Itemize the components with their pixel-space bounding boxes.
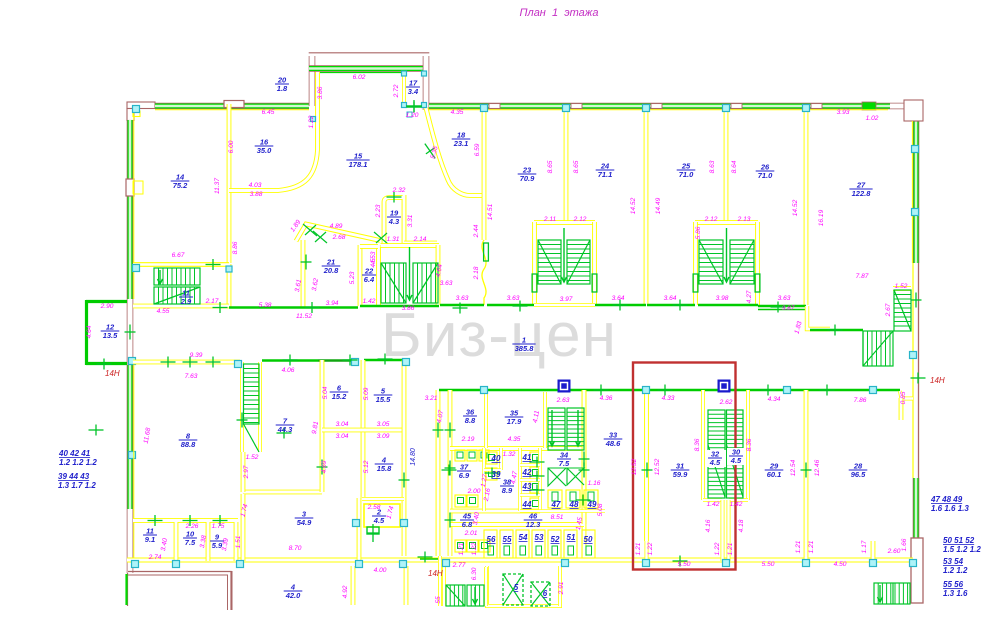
svg-text:5.38: 5.38 — [259, 302, 272, 309]
svg-text:1.22: 1.22 — [647, 542, 654, 555]
svg-text:3.64: 3.64 — [664, 295, 677, 302]
svg-text:6.67: 6.67 — [172, 252, 185, 259]
svg-text:8.36: 8.36 — [694, 438, 701, 451]
svg-text:71.0: 71.0 — [758, 171, 773, 180]
svg-text:3.4: 3.4 — [408, 87, 419, 96]
svg-text:122.8: 122.8 — [852, 189, 872, 198]
svg-text:3.31: 3.31 — [407, 214, 414, 227]
svg-text:6.45: 6.45 — [262, 109, 275, 116]
svg-text:2.12: 2.12 — [573, 216, 587, 223]
svg-text:6.00: 6.00 — [228, 140, 235, 153]
svg-text:2.9: 2.9 — [180, 297, 192, 306]
svg-text:15.5: 15.5 — [376, 395, 391, 404]
svg-text:4.64: 4.64 — [86, 325, 93, 338]
svg-text:1.42: 1.42 — [730, 501, 743, 508]
svg-text:1.75: 1.75 — [212, 523, 225, 530]
svg-text:1.8: 1.8 — [277, 84, 288, 93]
svg-text:40: 40 — [491, 454, 501, 463]
svg-text:1.22: 1.22 — [714, 542, 721, 555]
svg-text:3.63: 3.63 — [456, 295, 469, 302]
svg-text:8.63: 8.63 — [709, 160, 716, 173]
svg-text:2.11: 2.11 — [543, 216, 557, 223]
svg-text:59.9: 59.9 — [673, 470, 688, 479]
svg-text:1.21: 1.21 — [808, 540, 815, 553]
svg-text:6.02: 6.02 — [353, 74, 366, 81]
svg-text:14.51: 14.51 — [487, 203, 494, 220]
svg-text:385.8: 385.8 — [515, 344, 535, 353]
svg-text:41: 41 — [522, 453, 532, 462]
svg-text:4.92: 4.92 — [342, 585, 349, 598]
svg-text:12.3: 12.3 — [526, 520, 541, 529]
svg-text:1.3 1.7 1.2: 1.3 1.7 1.2 — [58, 481, 96, 490]
svg-text:1.21: 1.21 — [458, 542, 465, 555]
svg-text:8.64: 8.64 — [731, 160, 738, 173]
svg-text:15.8: 15.8 — [377, 464, 392, 473]
svg-text:3.64: 3.64 — [612, 295, 625, 302]
svg-text:23.1: 23.1 — [453, 139, 469, 148]
svg-text:1.52: 1.52 — [895, 283, 908, 290]
svg-text:1.21: 1.21 — [795, 540, 802, 553]
svg-text:4.5: 4.5 — [730, 456, 742, 465]
svg-text:1.3 1.6: 1.3 1.6 — [943, 589, 968, 598]
svg-text:5.12: 5.12 — [363, 460, 370, 473]
svg-text:4.3: 4.3 — [388, 217, 400, 226]
svg-text:2.19: 2.19 — [461, 436, 475, 443]
svg-text:1.17: 1.17 — [861, 540, 868, 553]
svg-text:8.36: 8.36 — [746, 438, 753, 451]
svg-text:8.65: 8.65 — [573, 160, 580, 173]
svg-text:14H: 14H — [428, 569, 443, 578]
svg-text:1.21: 1.21 — [635, 542, 642, 555]
svg-text:3.86: 3.86 — [317, 86, 324, 99]
svg-text:4.55: 4.55 — [157, 308, 170, 315]
svg-text:3.21: 3.21 — [425, 395, 438, 402]
svg-text:3.86: 3.86 — [402, 305, 415, 312]
svg-text:71.0: 71.0 — [679, 170, 694, 179]
svg-text:4.89: 4.89 — [330, 223, 343, 230]
svg-text:3.87: 3.87 — [782, 305, 795, 312]
svg-text:3.97: 3.97 — [560, 296, 573, 303]
svg-text:49: 49 — [587, 500, 597, 509]
svg-text:1.22: 1.22 — [471, 542, 478, 555]
svg-text:42: 42 — [522, 468, 532, 477]
svg-text:52: 52 — [551, 535, 560, 544]
svg-text:2.68: 2.68 — [332, 234, 346, 241]
svg-text:6.59: 6.59 — [474, 143, 481, 156]
svg-text:5.08: 5.08 — [597, 503, 604, 516]
svg-text:56: 56 — [487, 535, 496, 544]
svg-text:1.21: 1.21 — [727, 542, 734, 555]
svg-text:14.52: 14.52 — [792, 199, 799, 216]
svg-text:17.9: 17.9 — [507, 417, 522, 426]
svg-text:1.22: 1.22 — [308, 115, 315, 128]
svg-text:8.8: 8.8 — [465, 416, 476, 425]
svg-text:7.5: 7.5 — [185, 538, 196, 547]
svg-text:12.54: 12.54 — [790, 459, 797, 476]
svg-text:15.2: 15.2 — [332, 392, 347, 401]
svg-text:5.04: 5.04 — [322, 386, 329, 399]
svg-text:44.3: 44.3 — [277, 425, 293, 434]
svg-text:2.23: 2.23 — [375, 204, 382, 218]
svg-text:13.5: 13.5 — [103, 331, 118, 340]
svg-text:2.13: 2.13 — [737, 216, 751, 223]
svg-text:14.52: 14.52 — [630, 197, 637, 214]
svg-text:44: 44 — [522, 500, 532, 509]
svg-text:2.63: 2.63 — [556, 397, 570, 404]
svg-text:2.77: 2.77 — [452, 562, 466, 569]
svg-text:8.9: 8.9 — [502, 486, 513, 495]
svg-text:4.5: 4.5 — [370, 258, 377, 267]
svg-text:6.9: 6.9 — [459, 471, 470, 480]
svg-text:2.01: 2.01 — [464, 530, 478, 537]
svg-text:50: 50 — [584, 535, 593, 544]
svg-text:2.97: 2.97 — [243, 465, 250, 479]
svg-text:2.67: 2.67 — [885, 303, 892, 317]
svg-text:54.9: 54.9 — [297, 518, 312, 527]
svg-text:54: 54 — [519, 533, 528, 542]
svg-text:8.70: 8.70 — [289, 545, 302, 552]
svg-text:39: 39 — [492, 470, 501, 479]
svg-text:1.31: 1.31 — [387, 236, 400, 243]
svg-text:55 56: 55 56 — [943, 580, 964, 589]
svg-text:4.33: 4.33 — [662, 395, 675, 402]
svg-text:2.18: 2.18 — [473, 266, 480, 280]
svg-text:4.06: 4.06 — [282, 367, 295, 374]
svg-text:2.12: 2.12 — [704, 216, 718, 223]
svg-text:3.93: 3.93 — [837, 109, 850, 116]
svg-text:53: 53 — [535, 533, 544, 542]
svg-text:3.63: 3.63 — [507, 295, 520, 302]
svg-text:40 42 41: 40 42 41 — [58, 449, 91, 458]
svg-text:12.46: 12.46 — [814, 459, 821, 476]
svg-text:4.16: 4.16 — [705, 519, 712, 532]
svg-text:47: 47 — [551, 500, 561, 509]
svg-text:55: 55 — [503, 535, 512, 544]
svg-text:5.86: 5.86 — [695, 226, 702, 239]
svg-text:2.26: 2.26 — [185, 523, 199, 530]
svg-text:71.1: 71.1 — [598, 170, 613, 179]
svg-text:6.4: 6.4 — [364, 275, 375, 284]
svg-text:2.74: 2.74 — [148, 554, 162, 561]
svg-text:2.91: 2.91 — [558, 581, 565, 595]
svg-text:53 54: 53 54 — [943, 557, 964, 566]
svg-text:4.00: 4.00 — [374, 567, 387, 574]
svg-text:4.35: 4.35 — [451, 109, 464, 116]
svg-text:16.19: 16.19 — [818, 209, 825, 226]
svg-text:4.18: 4.18 — [738, 519, 745, 532]
svg-text:3.88: 3.88 — [250, 191, 263, 198]
svg-text:178.1: 178.1 — [349, 160, 368, 169]
svg-text:14H: 14H — [930, 376, 945, 385]
svg-text:11.52: 11.52 — [296, 313, 312, 320]
svg-text:4.50: 4.50 — [834, 561, 847, 568]
svg-text:1.2 1.2 1.2: 1.2 1.2 1.2 — [59, 458, 97, 467]
svg-text:3.05: 3.05 — [377, 421, 390, 428]
svg-text:48.6: 48.6 — [605, 439, 621, 448]
svg-text:7.86: 7.86 — [854, 397, 867, 404]
svg-text:1.02: 1.02 — [866, 115, 879, 122]
svg-text:5.09: 5.09 — [363, 387, 370, 400]
svg-text:3.04: 3.04 — [336, 433, 349, 440]
svg-text:9.1: 9.1 — [145, 535, 155, 544]
svg-text:4.5: 4.5 — [373, 516, 385, 525]
svg-text:9.39: 9.39 — [190, 352, 203, 359]
svg-text:6.30: 6.30 — [471, 567, 478, 580]
svg-text:2.72: 2.72 — [393, 84, 400, 98]
svg-text:3.94: 3.94 — [326, 300, 339, 307]
svg-text:4.36: 4.36 — [600, 395, 613, 402]
svg-text:2.62: 2.62 — [719, 399, 733, 406]
svg-text:1.2 1.2: 1.2 1.2 — [943, 566, 968, 575]
svg-text:51: 51 — [567, 533, 576, 542]
svg-text:2.58: 2.58 — [367, 504, 381, 511]
svg-text:0.85: 0.85 — [900, 391, 907, 404]
svg-text:55: 55 — [435, 596, 442, 604]
svg-text:50 51 52: 50 51 52 — [943, 536, 975, 545]
svg-text:14H: 14H — [105, 369, 120, 378]
svg-text:8.86: 8.86 — [232, 241, 239, 254]
svg-text:7.5: 7.5 — [559, 459, 570, 468]
svg-text:5.23: 5.23 — [349, 271, 356, 284]
svg-text:60.1: 60.1 — [767, 470, 782, 479]
svg-text:4.27: 4.27 — [746, 290, 753, 303]
svg-text:20.8: 20.8 — [323, 266, 339, 275]
svg-text:42.0: 42.0 — [285, 591, 301, 600]
svg-text:5.50: 5.50 — [762, 561, 775, 568]
svg-text:3.63: 3.63 — [440, 280, 453, 287]
svg-text:7.87: 7.87 — [856, 273, 869, 280]
svg-text:8.51: 8.51 — [551, 514, 564, 521]
svg-text:4.03: 4.03 — [249, 182, 262, 189]
svg-text:1.20: 1.20 — [406, 112, 419, 119]
svg-text:3.09: 3.09 — [377, 433, 390, 440]
svg-text:12.52: 12.52 — [631, 458, 638, 475]
svg-text:3.04: 3.04 — [336, 421, 349, 428]
svg-text:8.65: 8.65 — [547, 160, 554, 173]
svg-text:3.63: 3.63 — [778, 295, 791, 302]
svg-text:1.42: 1.42 — [363, 298, 376, 305]
svg-text:35.0: 35.0 — [257, 146, 272, 155]
svg-text:39 44 43: 39 44 43 — [58, 472, 90, 481]
svg-text:4.35: 4.35 — [508, 436, 521, 443]
svg-text:47 48 49: 47 48 49 — [930, 495, 963, 504]
svg-text:2.90: 2.90 — [100, 303, 114, 310]
svg-text:1.52: 1.52 — [246, 454, 259, 461]
svg-text:88.8: 88.8 — [181, 440, 196, 449]
svg-text:4.34: 4.34 — [768, 396, 781, 403]
svg-text:96.5: 96.5 — [851, 470, 866, 479]
svg-text:6: 6 — [543, 589, 548, 598]
svg-text:3.98: 3.98 — [716, 295, 729, 302]
svg-text:2.14: 2.14 — [413, 236, 427, 243]
svg-text:5.50: 5.50 — [678, 561, 691, 568]
svg-text:11.37: 11.37 — [214, 178, 221, 194]
svg-text:План 1 этажа: План 1 этажа — [520, 7, 599, 19]
svg-text:14.49: 14.49 — [655, 197, 662, 214]
svg-text:2.32: 2.32 — [392, 187, 406, 194]
svg-text:1.6 1.6 1.3: 1.6 1.6 1.3 — [931, 504, 969, 513]
svg-text:2.60: 2.60 — [887, 548, 901, 555]
svg-text:14.80: 14.80 — [410, 448, 417, 466]
svg-text:1.32: 1.32 — [503, 451, 516, 458]
svg-text:2.44: 2.44 — [473, 224, 480, 238]
svg-text:4.69: 4.69 — [321, 460, 328, 473]
svg-text:1.5 1.2 1.2: 1.5 1.2 1.2 — [943, 545, 981, 554]
svg-text:7.63: 7.63 — [185, 373, 198, 380]
svg-text:2.00: 2.00 — [467, 488, 481, 495]
svg-text:12.52: 12.52 — [654, 458, 661, 475]
svg-text:1.66: 1.66 — [901, 538, 908, 551]
svg-text:48: 48 — [569, 500, 579, 509]
svg-text:5: 5 — [514, 583, 519, 592]
svg-text:75.2: 75.2 — [173, 181, 188, 190]
svg-text:1.16: 1.16 — [588, 480, 601, 487]
svg-text:4.5: 4.5 — [709, 458, 721, 467]
svg-text:70.9: 70.9 — [520, 174, 535, 183]
svg-text:2.17: 2.17 — [205, 298, 219, 305]
svg-text:1.51: 1.51 — [235, 535, 242, 548]
svg-text:43: 43 — [522, 482, 532, 491]
svg-text:1.42: 1.42 — [707, 501, 720, 508]
